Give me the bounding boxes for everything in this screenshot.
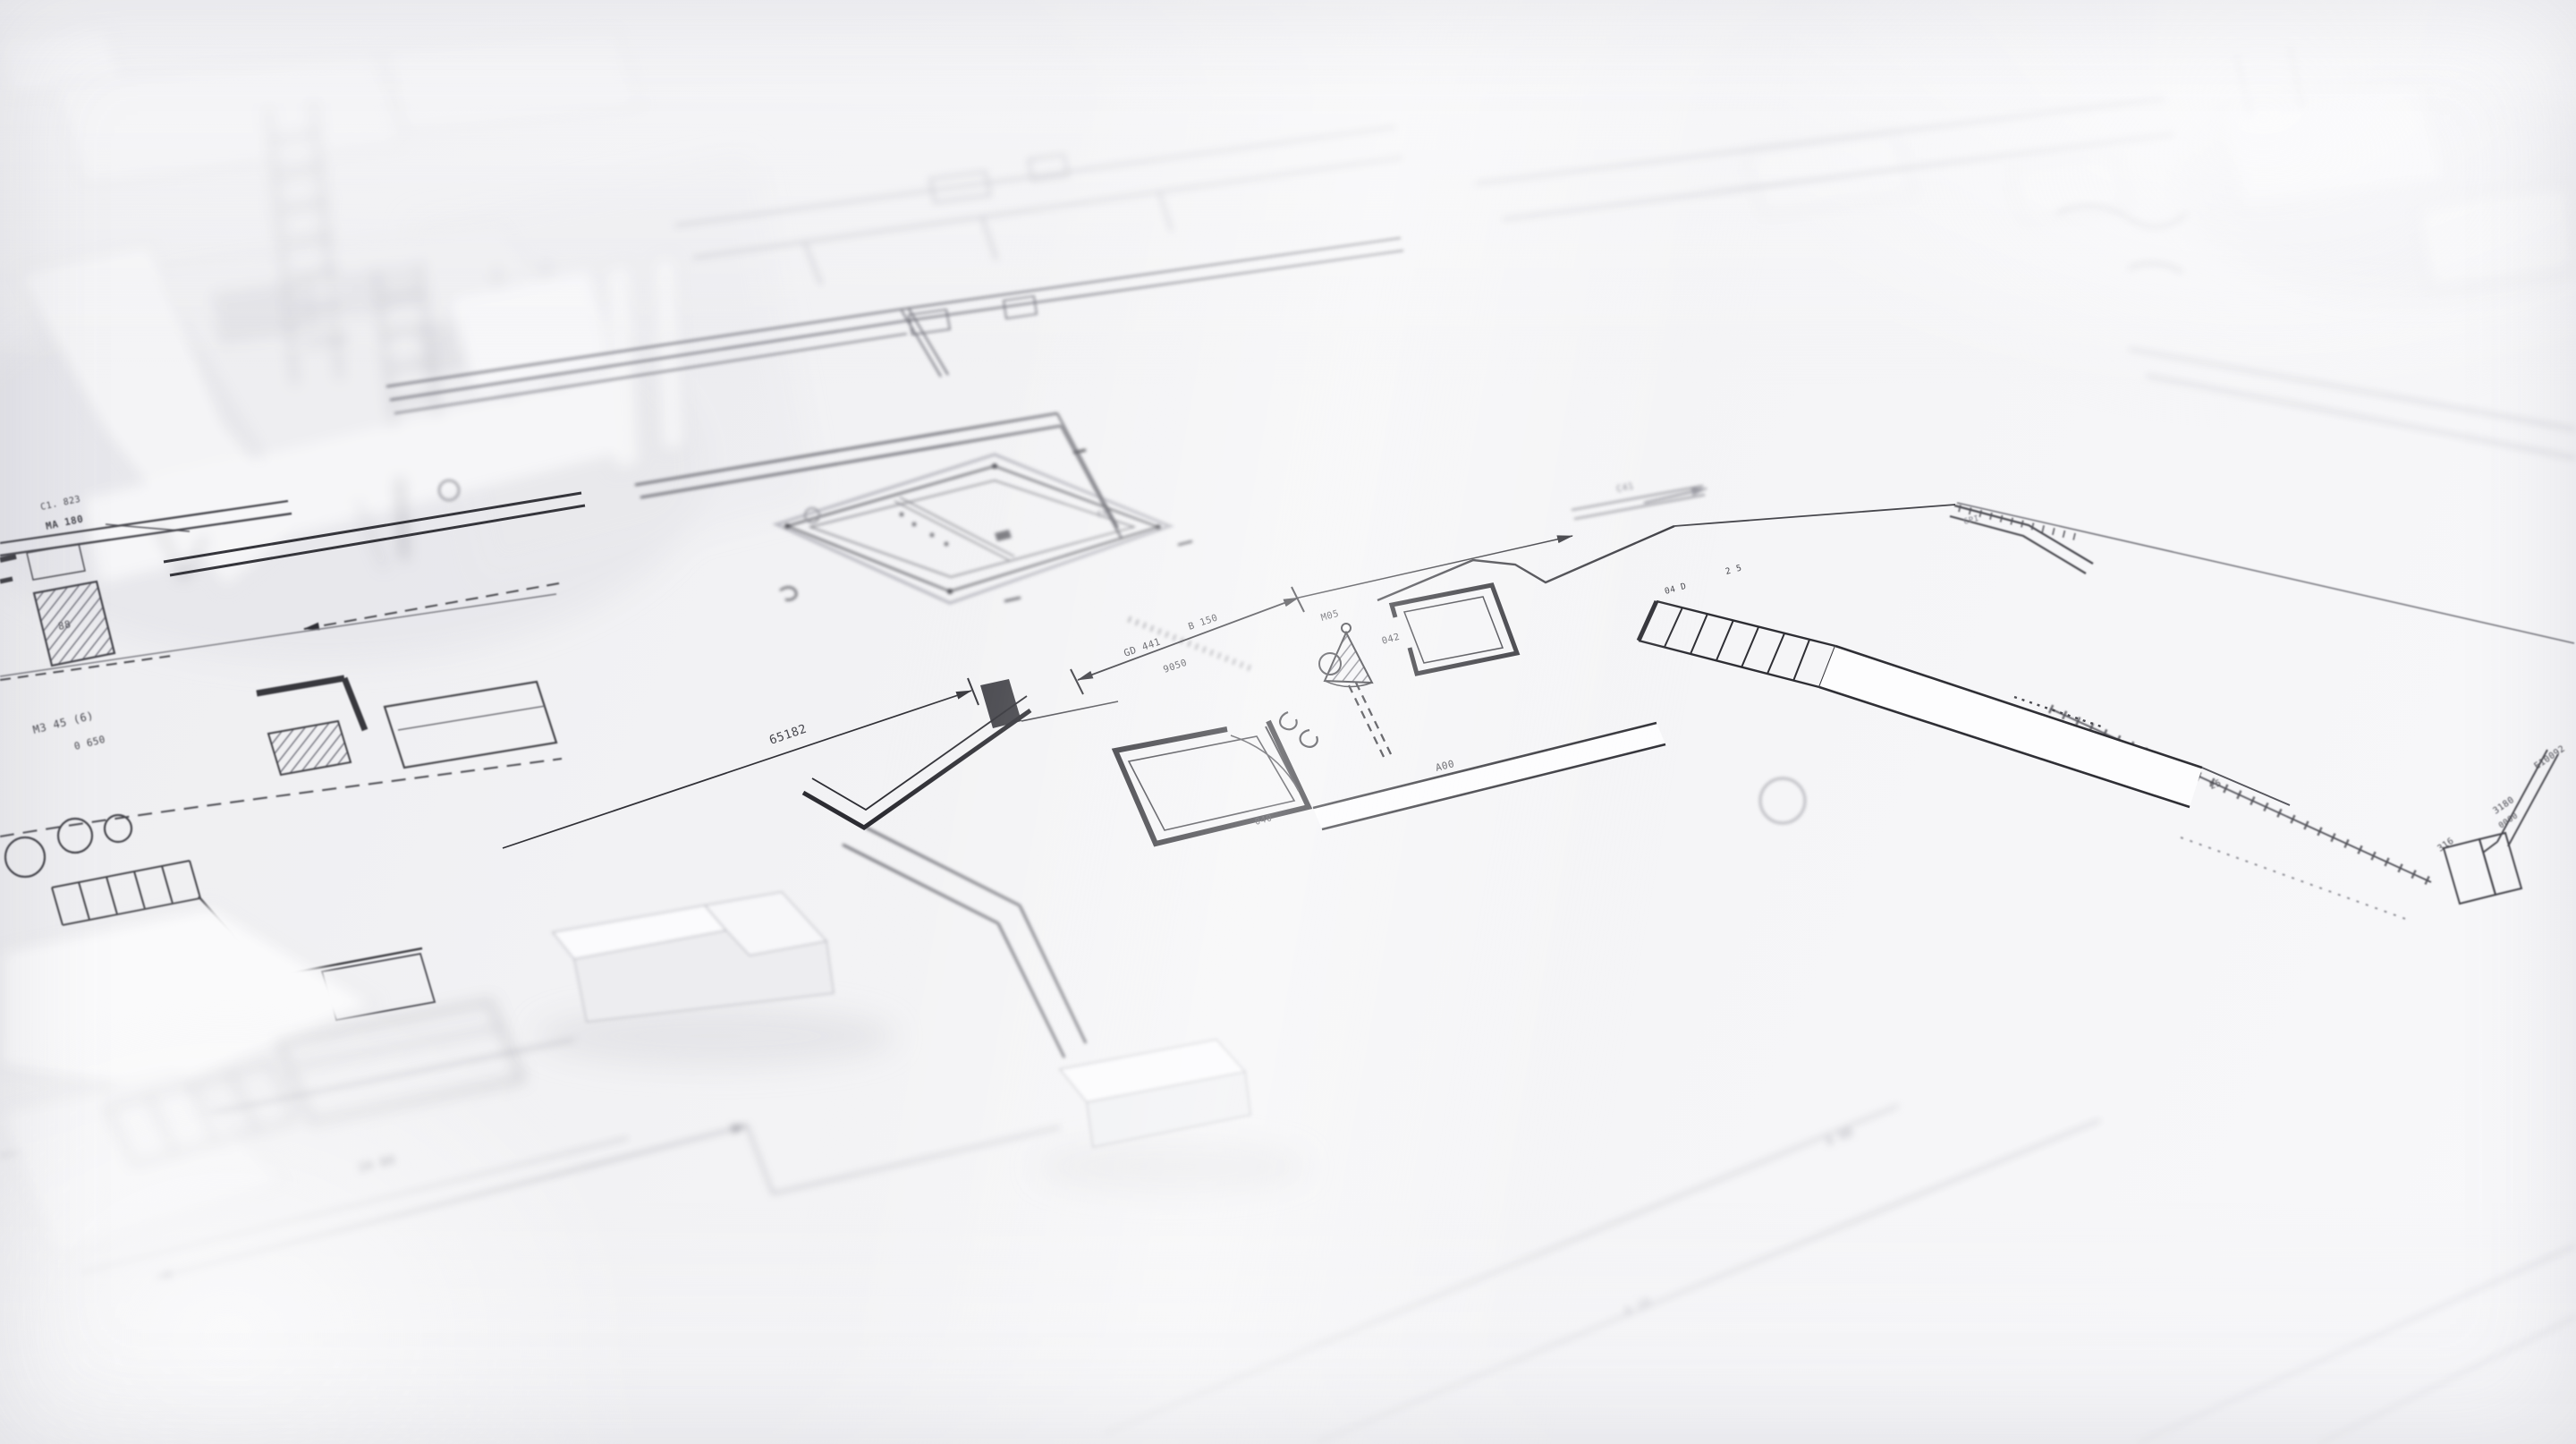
dimension-label-right-dim-b: 25 bbox=[2208, 778, 2223, 792]
c41-pointer: C41 bbox=[1572, 481, 1707, 519]
right-side-details: CPI 0 950 25 316 3180 0000 E10092 bbox=[1950, 503, 2574, 920]
room-upper: 042 bbox=[1381, 585, 1517, 674]
dimension-label-center-ref: M05 bbox=[1320, 608, 1341, 624]
dimension-label-door-ref: 040 bbox=[1254, 813, 1274, 828]
dimension-label-main: 65182 bbox=[767, 722, 809, 748]
extruded-prism-center bbox=[1060, 1040, 1250, 1147]
main-dimension: 65182 bbox=[503, 678, 979, 848]
survey-circle-right bbox=[1760, 778, 1805, 823]
wall-chain-south bbox=[843, 828, 1086, 1058]
dimension-label-bottom-b: 4 19 bbox=[1623, 1295, 1653, 1318]
soft-bottom-dimensions: 24 84 4 19 A 08 bbox=[0, 1040, 2576, 1444]
model-back-wall-2 bbox=[385, 31, 640, 130]
revision-squiggle bbox=[1280, 712, 1318, 747]
staircase-central: 04 D 2 5 bbox=[1639, 563, 1835, 687]
dimension-label-right-ref-a: 316 bbox=[2436, 836, 2456, 854]
extruded-wall-center: A00 bbox=[1313, 723, 1665, 829]
v-wall-outer bbox=[803, 710, 1030, 828]
dimension-label-bottom-c: A 08 bbox=[1825, 1125, 1855, 1148]
dimension-label-room-ref: 042 bbox=[1381, 632, 1402, 647]
dimension-label-right-ref-c: 0000 bbox=[2497, 811, 2520, 831]
light-cone-symbol bbox=[1325, 624, 1392, 759]
dimension-label-wall-ref: A00 bbox=[1435, 758, 1456, 774]
dimension-label-center-b: 9050 bbox=[1162, 658, 1189, 675]
plan-label-cpi: CPI bbox=[1962, 514, 1980, 527]
survey-circle-a bbox=[5, 837, 45, 877]
dimension-label-bottom-a: 24 84 bbox=[357, 1153, 396, 1176]
room-lower: 040 bbox=[1115, 721, 1309, 844]
blurred-foreground bbox=[0, 905, 522, 1254]
dimension-label-left-dim-b: 0 650 bbox=[73, 734, 107, 752]
blueprint-render: C1. 823 MA 180 88 bbox=[0, 0, 2576, 1444]
hatched-wall-block bbox=[268, 721, 351, 775]
dimension-label-left-dim-a: M3 45 (6) bbox=[31, 709, 95, 736]
square-room: EB bbox=[776, 450, 1192, 603]
dimension-label-stair-b: 2 5 bbox=[1724, 563, 1743, 576]
blueprint-canvas: C1. 823 MA 180 88 bbox=[0, 0, 2576, 1444]
dimension-label-stair-a: 04 D bbox=[1664, 582, 1688, 597]
extruded-prism-left bbox=[553, 892, 834, 1022]
dimension-label-upper-ref: C41 bbox=[1615, 481, 1634, 495]
